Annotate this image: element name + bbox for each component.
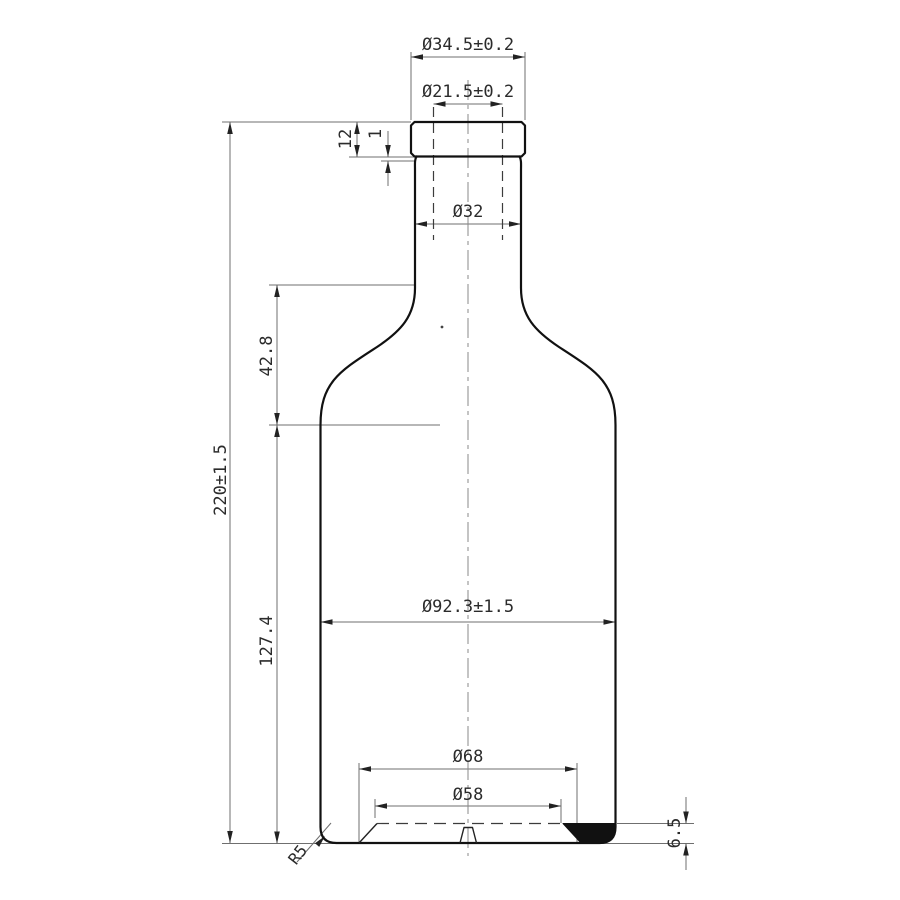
dim-mouth-outer-diameter: Ø34.5±0.2	[422, 35, 514, 55]
dim-shoulder-height: 42.8	[257, 336, 277, 377]
dim-overall-height: 220±1.5	[211, 444, 231, 516]
dim-base-corner-radius: R5	[284, 841, 311, 868]
hidden-lines	[377, 80, 563, 856]
dim-base-inner-diameter: Ø58	[453, 785, 484, 805]
base-slant-left	[359, 824, 377, 844]
dim-mouth-inner-diameter: Ø21.5±0.2	[422, 82, 514, 102]
dim-finish-step: 1	[366, 129, 386, 139]
dim-body-height: 127.4	[257, 615, 277, 666]
bottle-technical-drawing: Ø34.5±0.2 Ø21.5±0.2 Ø32 Ø92.3±1.5 Ø68 Ø5…	[0, 0, 900, 900]
dim-neck-diameter: Ø32	[453, 202, 484, 222]
arrowheads	[227, 54, 689, 855]
dim-base-height: 6.5	[665, 818, 685, 849]
drawing-canvas: Ø34.5±0.2 Ø21.5±0.2 Ø32 Ø92.3±1.5 Ø68 Ø5…	[0, 0, 900, 900]
dimension-labels: Ø34.5±0.2 Ø21.5±0.2 Ø32 Ø92.3±1.5 Ø68 Ø5…	[211, 35, 685, 868]
base-section-fill	[563, 824, 616, 844]
dim-base-outer-diameter: Ø68	[453, 747, 484, 767]
dim-finish-height: 12	[336, 129, 356, 149]
dim-body-diameter: Ø92.3±1.5	[422, 597, 514, 617]
stray-mark	[441, 326, 444, 329]
extension-lines	[222, 52, 694, 844]
